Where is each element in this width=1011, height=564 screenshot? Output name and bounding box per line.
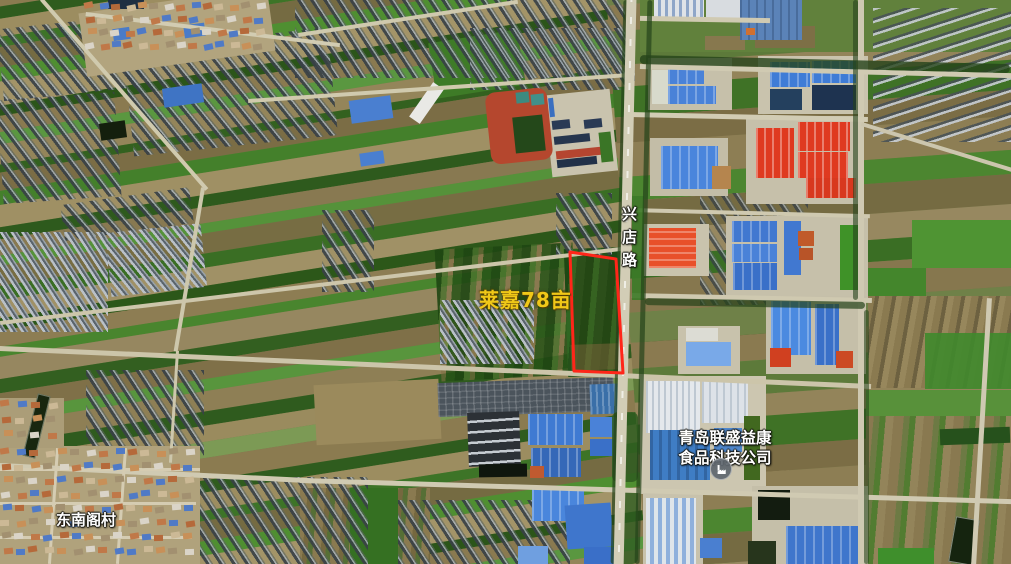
building [565, 502, 614, 549]
building [668, 86, 716, 104]
building [686, 342, 731, 366]
village-house [2, 417, 11, 424]
village-house [60, 464, 69, 470]
village-house [71, 493, 80, 499]
terrain-patch [866, 390, 1011, 416]
shed-rows [467, 411, 521, 467]
village-house [45, 479, 54, 485]
village-house [150, 44, 159, 51]
village-house [4, 476, 13, 482]
building [646, 381, 700, 433]
building [812, 85, 856, 110]
terrain-patch [866, 390, 1011, 564]
tree-line [853, 0, 858, 300]
village-house [138, 1, 148, 8]
village-house [157, 451, 166, 457]
village-house [254, 18, 263, 25]
village-house [31, 534, 40, 540]
solar-roof [437, 377, 614, 417]
village-house [70, 449, 79, 455]
village-house [183, 465, 192, 471]
court [530, 93, 544, 105]
village-house [98, 547, 107, 553]
village-house [176, 4, 186, 11]
village-house [141, 490, 150, 497]
company-name-line1: 青岛联盛益康 [652, 428, 798, 448]
greenhouses [193, 477, 368, 564]
village-house [46, 416, 55, 423]
building [661, 146, 718, 189]
village-house [126, 31, 135, 38]
village-house [17, 449, 26, 456]
building [552, 119, 571, 130]
building [686, 328, 718, 341]
building [528, 414, 583, 445]
satellite-map[interactable]: 兴店路 莱嘉78亩 青岛联盛益康 食品科技公司 东南阁村 [0, 0, 1011, 564]
village-house [188, 43, 197, 50]
building [733, 263, 777, 290]
village-house [3, 504, 12, 511]
village-house [124, 15, 134, 22]
terrain-patch [314, 379, 442, 445]
village-house [99, 451, 108, 458]
village-house [182, 493, 191, 500]
building [836, 351, 853, 368]
village-house [157, 519, 166, 526]
village-house [140, 17, 149, 24]
tree-line [864, 310, 869, 564]
greenhouses [556, 193, 612, 255]
village-house [168, 548, 177, 555]
building [770, 89, 802, 110]
village-house [116, 520, 125, 527]
building [646, 498, 696, 564]
village-house [18, 401, 27, 408]
village-house [128, 521, 137, 527]
village-house [58, 448, 67, 455]
village-house [229, 30, 239, 37]
village-house [191, 27, 201, 34]
village-house [111, 4, 120, 11]
village-house [110, 29, 120, 36]
village-house [16, 549, 25, 555]
village-house [74, 477, 83, 484]
village-house [143, 506, 152, 512]
building [798, 122, 850, 151]
village-house [86, 546, 95, 553]
village-house [127, 477, 136, 483]
village-house [45, 547, 54, 554]
village-house [169, 520, 178, 526]
village-house [192, 2, 201, 9]
village-house [257, 2, 267, 9]
building [746, 28, 755, 35]
village-house [205, 17, 215, 24]
village-house [60, 532, 69, 539]
village-house [44, 507, 53, 514]
village-street [0, 468, 200, 471]
village-house [168, 476, 177, 482]
village-house [31, 402, 40, 408]
pond [99, 120, 127, 140]
building [649, 228, 696, 268]
road-name-label: 兴店路 [619, 206, 640, 275]
village-street [0, 536, 192, 539]
building [702, 381, 748, 423]
village-house [231, 42, 240, 49]
village-house [202, 29, 211, 36]
village-house [15, 418, 24, 424]
village-house [43, 463, 52, 470]
village-house [214, 3, 224, 10]
greenhouses [0, 92, 121, 204]
terrain-patch [878, 548, 934, 564]
village-house [243, 16, 253, 23]
village-house [139, 42, 149, 49]
building [770, 348, 791, 367]
village-house [178, 16, 187, 23]
factory-glyph [715, 463, 728, 476]
village-house [177, 41, 187, 48]
village-house [158, 491, 167, 497]
village-house [15, 505, 24, 511]
village-house [14, 465, 23, 471]
village-house [126, 505, 135, 512]
village-house [171, 464, 180, 471]
village-house [142, 534, 151, 541]
village-house [59, 492, 68, 499]
village-house [144, 546, 153, 552]
village-house [153, 28, 163, 35]
village-house [101, 463, 110, 469]
village-house [113, 532, 122, 538]
terrain-patch [866, 268, 926, 298]
village-house [30, 490, 39, 496]
village-house [86, 16, 96, 23]
village-house [216, 15, 225, 22]
village-house [0, 520, 9, 526]
village-house [4, 430, 13, 436]
village-house [149, 3, 158, 10]
terrain-patch [925, 333, 1011, 389]
village-house [156, 479, 165, 486]
terrain-patch [912, 220, 1011, 268]
village-house [29, 450, 38, 456]
village-house [84, 462, 93, 469]
village-house [57, 548, 66, 554]
village-house [142, 462, 151, 468]
village-house [164, 30, 173, 37]
village-house [46, 519, 55, 525]
factory-icon[interactable] [710, 458, 732, 480]
parcel-label: 莱嘉78亩 [479, 284, 572, 313]
village-house [140, 450, 149, 457]
village-house [97, 18, 106, 25]
village-house [101, 535, 110, 542]
village-house [253, 43, 263, 50]
building [700, 538, 722, 558]
village-house [130, 465, 139, 472]
village-house [72, 533, 81, 539]
building [798, 152, 848, 178]
village-house [18, 493, 27, 500]
village-house [186, 449, 195, 456]
building [518, 546, 548, 564]
hedgerow [940, 427, 1011, 445]
village-house [112, 492, 121, 498]
terrain-patch [571, 343, 622, 371]
village-house [100, 491, 109, 498]
village-house [88, 28, 97, 35]
village-house [112, 41, 121, 48]
village-house [240, 28, 249, 35]
village-house [154, 535, 163, 541]
village-house [30, 432, 39, 439]
village-house [29, 518, 38, 525]
village-house [183, 533, 192, 540]
building [732, 244, 777, 262]
village-house [2, 464, 11, 471]
building [756, 128, 794, 178]
building [806, 178, 856, 198]
village-house [116, 448, 125, 454]
village-house [115, 476, 124, 483]
building [786, 526, 858, 564]
village-house [48, 433, 57, 439]
terrain-patch [748, 541, 776, 564]
village-house [172, 504, 181, 511]
village-street [0, 502, 196, 505]
village-name-label: 东南阁村 [56, 509, 116, 530]
village-house [185, 549, 194, 555]
village-house [215, 40, 225, 47]
village-house [127, 549, 136, 556]
village-house [14, 533, 23, 540]
village-house [86, 478, 95, 484]
building [798, 231, 814, 246]
sports-pitch [512, 115, 546, 154]
village-house [101, 43, 111, 50]
greenhouses [86, 370, 204, 456]
building [799, 248, 813, 260]
building [530, 466, 544, 478]
village-house [230, 5, 239, 12]
terrain-patch [705, 36, 745, 50]
building [712, 166, 731, 189]
court [515, 91, 529, 103]
pond [479, 464, 527, 478]
village-house [100, 2, 110, 9]
village-house [28, 478, 37, 485]
village-house [4, 548, 13, 555]
building [584, 118, 603, 129]
village-house [162, 14, 172, 21]
village-house [184, 505, 193, 511]
building [771, 301, 811, 355]
building [652, 70, 668, 104]
building [732, 221, 777, 242]
